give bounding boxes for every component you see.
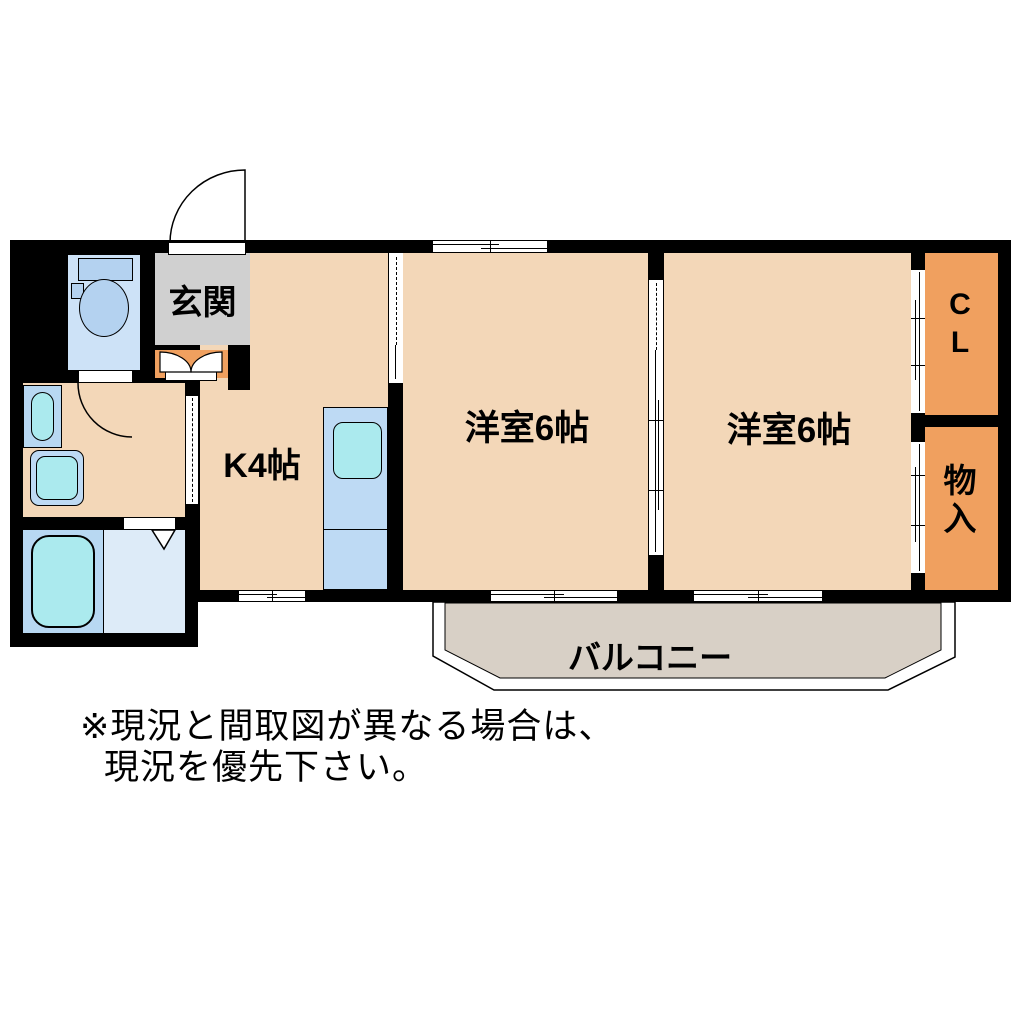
kitchen-counter-divider <box>324 529 387 530</box>
sliding-door-panel <box>915 467 916 542</box>
wall-patch-genkan <box>228 345 250 390</box>
sliding-door-panel <box>395 345 396 379</box>
storage-label-line2: 入 <box>935 500 985 538</box>
window-tick <box>758 591 759 601</box>
toilet-door-opening <box>78 370 133 383</box>
storage-label-line1: 物 <box>935 462 985 500</box>
window-tick <box>272 591 273 601</box>
sliding-door-tick <box>649 420 663 421</box>
room1-label: 洋室6帖 <box>437 400 617 451</box>
sliding-door-panel <box>915 300 916 380</box>
sliding-door-dash <box>396 257 397 345</box>
sliding-door-tick <box>911 475 925 476</box>
disclaimer-line1: ※現況と間取図が異なる場合は、 <box>80 706 614 747</box>
disclaimer-note: ※現況と間取図が異なる場合は、 現況を優先下さい。 <box>80 706 614 788</box>
room1-balcony-window <box>490 590 618 602</box>
washer-icon <box>36 456 78 500</box>
closet-label: C L <box>935 286 985 362</box>
room2-balcony-window <box>693 590 823 602</box>
kitchen-room1-sliding-door <box>389 253 403 383</box>
room-partition-sliding-doors <box>649 280 663 555</box>
sliding-door-tick <box>911 318 925 319</box>
genkan-label: 玄関 <box>169 275 237 324</box>
storage-sliding-door <box>911 442 925 573</box>
storage-label: 物 入 <box>935 462 985 538</box>
sliding-door-panel <box>919 272 920 411</box>
bathtub-icon <box>31 535 95 628</box>
window-tick <box>490 241 491 252</box>
toilet-bowl-icon <box>79 279 129 337</box>
room2-label: 洋室6帖 <box>699 402 879 453</box>
sliding-door-panel <box>919 444 920 571</box>
sliding-door-tick <box>649 490 663 491</box>
entrance-door-opening <box>168 242 246 255</box>
room1-top-window <box>432 240 548 253</box>
closet-label-line1: C <box>935 286 985 324</box>
kitchen-label: K4帖 <box>192 438 332 487</box>
sliding-door-panel <box>658 400 659 510</box>
closet-label-line2: L <box>935 324 985 362</box>
toilet-tank-icon <box>78 258 133 281</box>
disclaimer-line2: 現況を優先下さい。 <box>80 747 614 788</box>
sliding-door-tick <box>911 365 925 366</box>
closet-sliding-door <box>911 270 925 413</box>
sliding-door-tick <box>911 525 925 526</box>
kitchen-counter <box>323 407 388 590</box>
bathroom-door-opening <box>123 517 176 530</box>
sliding-door-panel <box>655 350 656 552</box>
shoe-cabinet-threshold <box>165 371 217 381</box>
floorplan-canvas: 玄関 <box>0 0 1020 1020</box>
kitchen-window <box>238 590 306 602</box>
kitchen-sink-icon <box>333 422 382 479</box>
genkan-room: 玄関 <box>155 253 250 345</box>
sliding-door-dash <box>656 283 657 350</box>
bathroom-floor <box>103 530 185 633</box>
window-tick <box>554 591 555 601</box>
washbasin-icon <box>31 392 54 441</box>
entrance-door-arc-icon <box>170 170 245 243</box>
balcony-label: バルコニー <box>560 631 740 679</box>
